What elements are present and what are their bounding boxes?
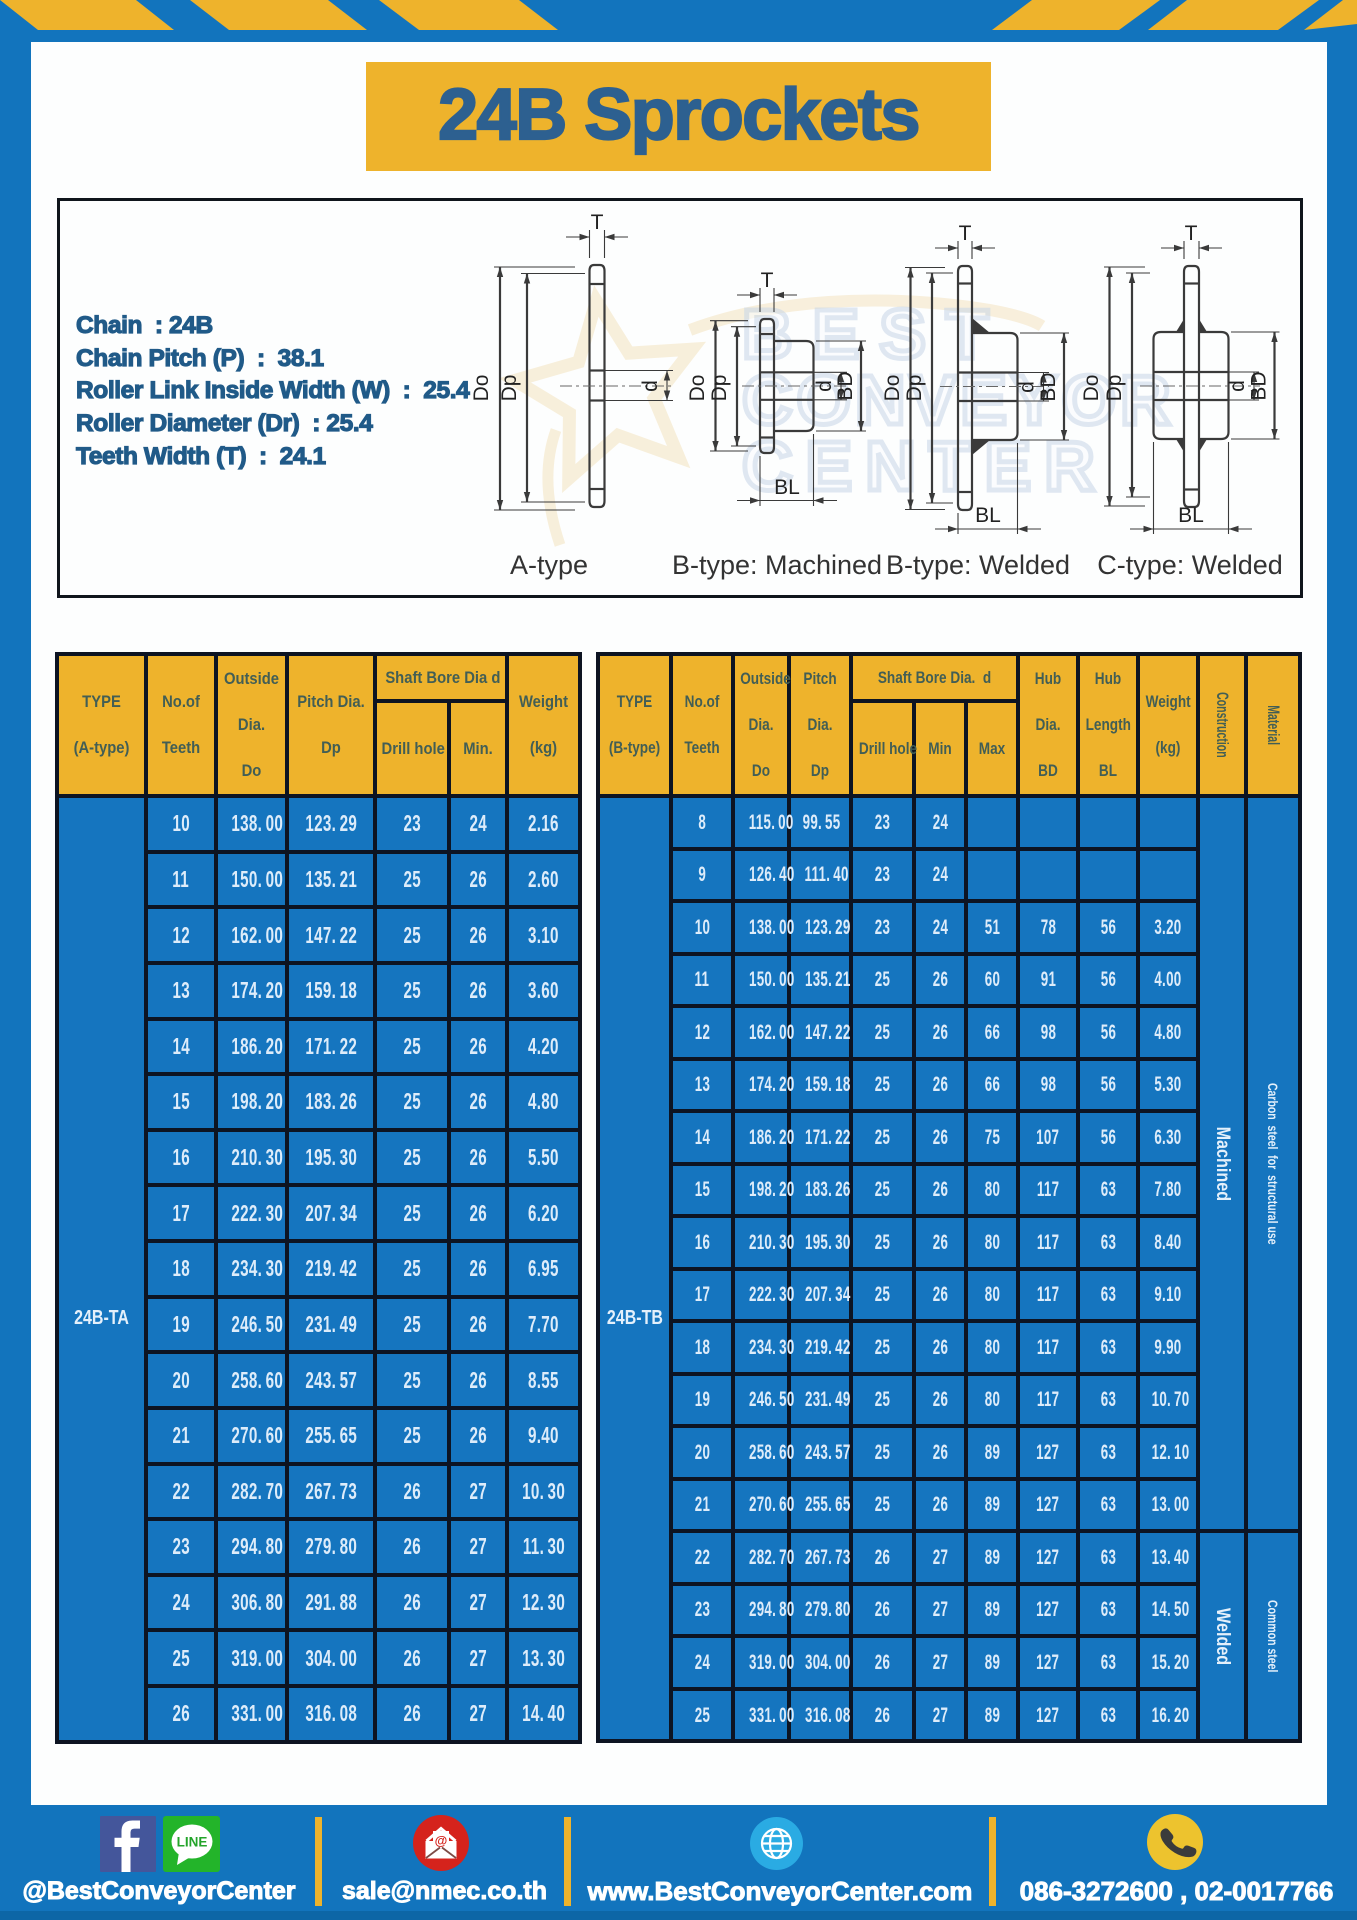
svg-text:d: d bbox=[1226, 380, 1249, 392]
svg-text:BD: BD bbox=[1248, 371, 1271, 400]
svg-text:Dp: Dp bbox=[708, 375, 731, 402]
svg-text:BL: BL bbox=[1178, 504, 1204, 527]
svg-text:Dp: Dp bbox=[903, 375, 926, 402]
svg-text:d: d bbox=[1016, 381, 1039, 393]
svg-text:T: T bbox=[1185, 222, 1198, 245]
svg-text:B-type: Machined: B-type: Machined bbox=[672, 550, 882, 580]
svg-text:Do: Do bbox=[1080, 375, 1103, 402]
svg-text:BL: BL bbox=[774, 476, 800, 499]
svg-text:d: d bbox=[813, 380, 836, 392]
svg-text:T: T bbox=[959, 222, 972, 245]
svg-text:Dp: Dp bbox=[1103, 375, 1126, 402]
svg-text:Do: Do bbox=[881, 375, 904, 402]
svg-text:@: @ bbox=[435, 1833, 448, 1848]
svg-text:T: T bbox=[591, 211, 604, 234]
svg-text:BL: BL bbox=[975, 504, 1001, 527]
svg-text:C-type: Welded: C-type: Welded bbox=[1097, 550, 1283, 580]
svg-text:BD: BD bbox=[834, 371, 857, 400]
svg-text:Do: Do bbox=[686, 375, 709, 402]
svg-text:T: T bbox=[761, 269, 774, 292]
svg-text:LINE: LINE bbox=[177, 1835, 208, 1850]
svg-text:BD: BD bbox=[1037, 372, 1060, 401]
svg-text:B-type: Welded: B-type: Welded bbox=[886, 550, 1070, 580]
svg-text:d: d bbox=[639, 380, 662, 392]
svg-text:Do: Do bbox=[470, 375, 493, 402]
svg-text:A-type: A-type bbox=[510, 550, 588, 580]
svg-text:Dp: Dp bbox=[498, 375, 521, 402]
